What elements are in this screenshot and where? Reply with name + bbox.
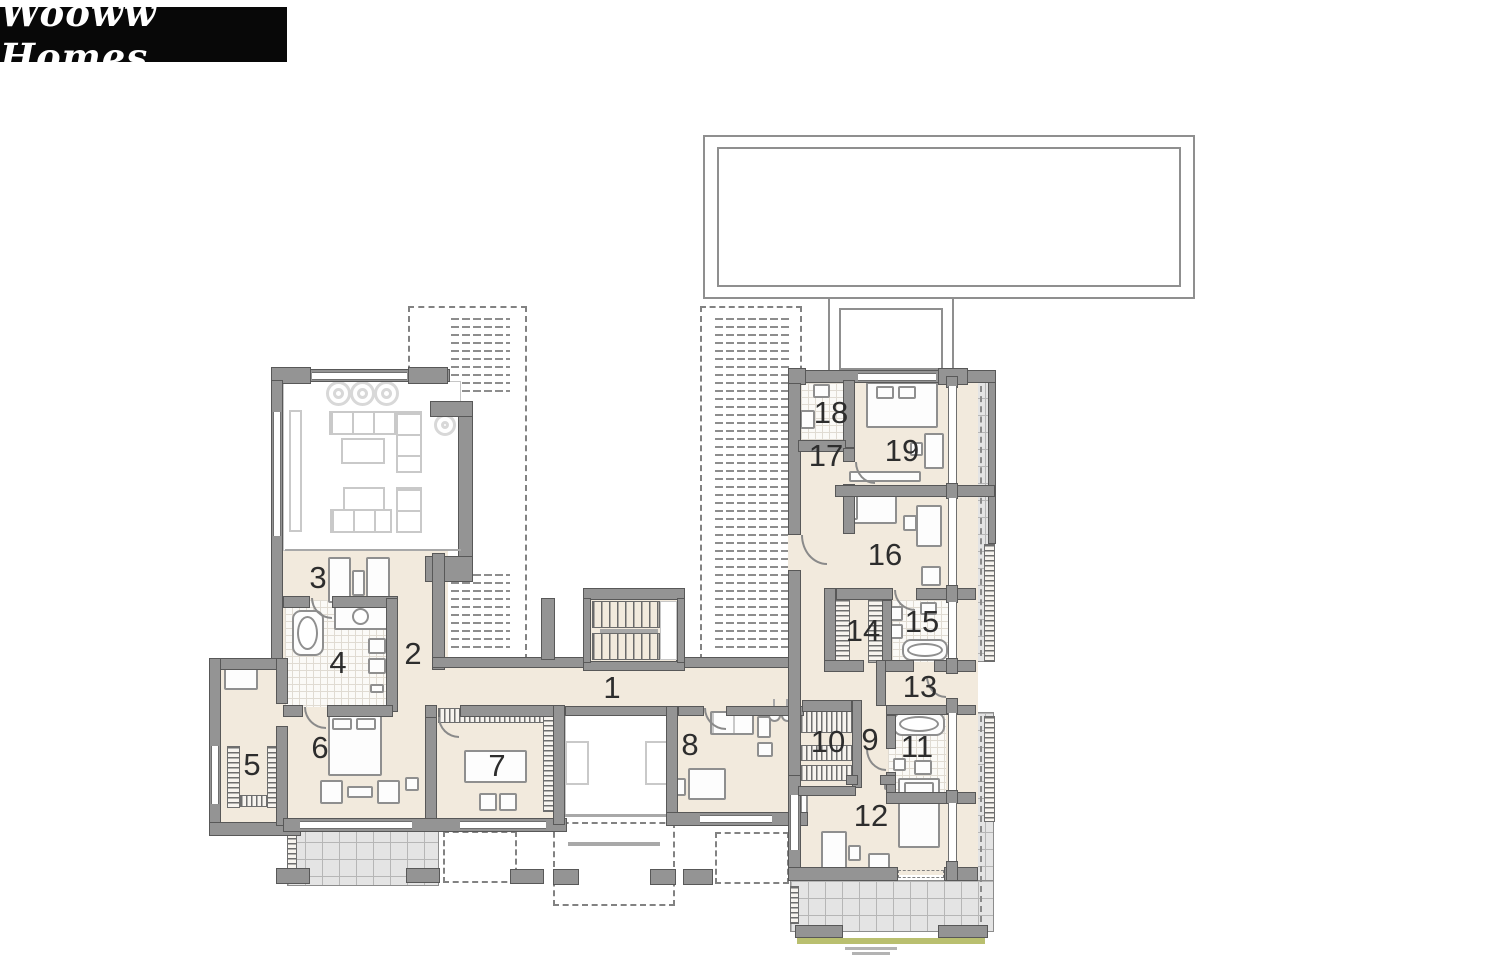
wardrobe [227,746,240,808]
caption-line [852,952,890,955]
window-bench [289,410,302,532]
wall-segment [541,598,555,660]
planting-strip [797,938,985,944]
wall-segment [880,775,896,785]
room-label-14: 14 [846,613,880,649]
room-label-4: 4 [329,645,346,681]
room-label-9: 9 [861,722,878,758]
wall-segment [553,705,565,825]
sofa [396,411,422,473]
wall-segment [327,705,393,717]
pillar [510,869,544,884]
pergola-hatch [448,574,510,652]
chair [903,515,917,531]
desk [916,505,942,547]
window [948,803,957,863]
wall-segment [666,706,678,818]
wall-segment [843,448,855,462]
wall-segment [802,700,852,712]
room-label-12: 12 [854,798,888,834]
wall-segment [886,792,976,804]
window [300,821,412,829]
side-table [352,570,365,596]
parapet-wall [988,376,996,544]
pillar [276,868,310,884]
railing-hatch [984,716,995,822]
lower-floor-outline [443,831,517,883]
wall-segment [283,596,310,608]
pillar [650,869,676,885]
sink [352,608,369,625]
railing-hatch [984,544,995,662]
garden-wall [795,925,843,938]
wall-pier [946,790,958,804]
room-label-2: 2 [404,636,421,672]
wall-pier [430,401,473,417]
lower-floor-outline [553,822,675,906]
room-label-8: 8 [681,727,698,763]
dresser [405,777,419,791]
room-label-10: 10 [811,724,845,760]
railing-hatch [790,886,799,924]
terrace-dashed-line [980,716,982,922]
room-label-19: 19 [885,433,919,469]
wall-segment [583,661,685,671]
lower-floor-outline [715,832,789,884]
window [948,498,957,586]
pillow [876,386,894,399]
wall-pier [946,861,958,881]
wall-segment [276,726,288,826]
terrace-dashed-line [980,386,982,656]
wall-segment [460,705,563,717]
stair-rail [600,629,658,633]
pillar [406,868,440,883]
floor-plan-sheet: 1 2 3 4 5 6 7 8 9 10 11 12 13 14 15 16 1… [0,0,1492,963]
wall-pier [946,658,958,674]
room-label-17: 17 [809,438,843,474]
bathtub-basin [297,616,318,650]
window [211,746,219,804]
wardrobe [240,795,270,807]
wall-segment [835,485,995,497]
room-label-7: 7 [488,748,505,784]
floor-edge [285,549,461,551]
wall-segment [788,867,898,881]
window [858,373,936,381]
wall-segment [432,553,445,670]
room-label-16: 16 [868,537,902,573]
toilet [368,638,386,654]
wall-segment [886,705,976,715]
stool [921,566,941,586]
bathtub-basin [907,643,943,657]
toilet [800,410,815,429]
step-edge [568,842,660,846]
ceiling-light-icon [326,381,351,406]
wall-segment [788,570,801,780]
wall-segment [458,403,473,563]
stair-run [592,601,660,628]
room-label-3: 3 [309,560,326,596]
wall-segment [788,383,801,535]
chair [848,845,861,861]
sliding-door [898,870,944,878]
skylight-shaft [839,308,943,370]
stair-run [592,633,660,660]
pergola-hatch [712,318,792,650]
desk [688,768,726,800]
window [948,602,957,659]
room-label-1: 1 [603,670,620,706]
wall-segment [425,717,437,823]
wall-pier [408,367,448,384]
armchair [377,780,400,804]
wall-segment [876,660,886,706]
wall-pier [946,483,958,499]
window [460,821,546,829]
pillar [683,869,713,885]
sink [370,684,384,693]
room-label-18: 18 [814,395,848,431]
sofa [565,741,589,785]
wall-segment [386,598,398,712]
ceiling-light-icon [374,381,399,406]
wall-segment [276,658,288,704]
wall-segment [432,657,590,668]
window [948,386,957,484]
garden-wall [938,925,988,938]
wall-segment [677,598,685,663]
wall-segment [678,706,704,716]
armchair [320,780,343,804]
wall-segment [824,660,864,672]
wall-segment [836,588,893,600]
ceiling-light-icon [434,414,456,436]
caption-line [845,947,897,950]
wall-segment [583,588,685,600]
stool [479,793,497,811]
brand-logo-text: Wooww Homes [0,0,287,79]
coffee-table [341,438,385,464]
bidet [368,658,386,674]
wall-segment [882,600,892,662]
wall-segment [565,706,675,716]
balcony-edge [565,814,667,817]
side-table [347,786,373,798]
window [700,815,772,823]
wall-segment [676,657,792,668]
room-label-6: 6 [311,730,328,766]
desk [924,433,944,469]
room-label-11: 11 [901,729,933,765]
wall-pier [946,585,958,603]
wall-segment [583,598,591,663]
window [790,795,799,850]
room-label-5: 5 [243,747,260,783]
sofa [396,487,422,533]
pillow [356,718,376,730]
room-label-13: 13 [903,669,937,705]
pillow [898,386,916,399]
pillow [332,718,352,730]
wall-segment [283,705,303,717]
stair-landing [660,601,677,660]
pillar [553,869,579,885]
wall-segment [886,715,896,749]
wall-segment [846,775,858,785]
ceiling-light-icon [350,381,375,406]
side-table [757,742,773,757]
window [273,412,281,536]
wall-segment [798,786,856,796]
sofa [330,509,392,533]
window [948,713,957,791]
window [312,372,407,380]
roof-outline-inner [717,147,1181,287]
stool [499,793,517,811]
wall-pier [946,698,958,714]
room-label-15: 15 [905,604,939,640]
brand-logo: Wooww Homes [0,7,287,62]
